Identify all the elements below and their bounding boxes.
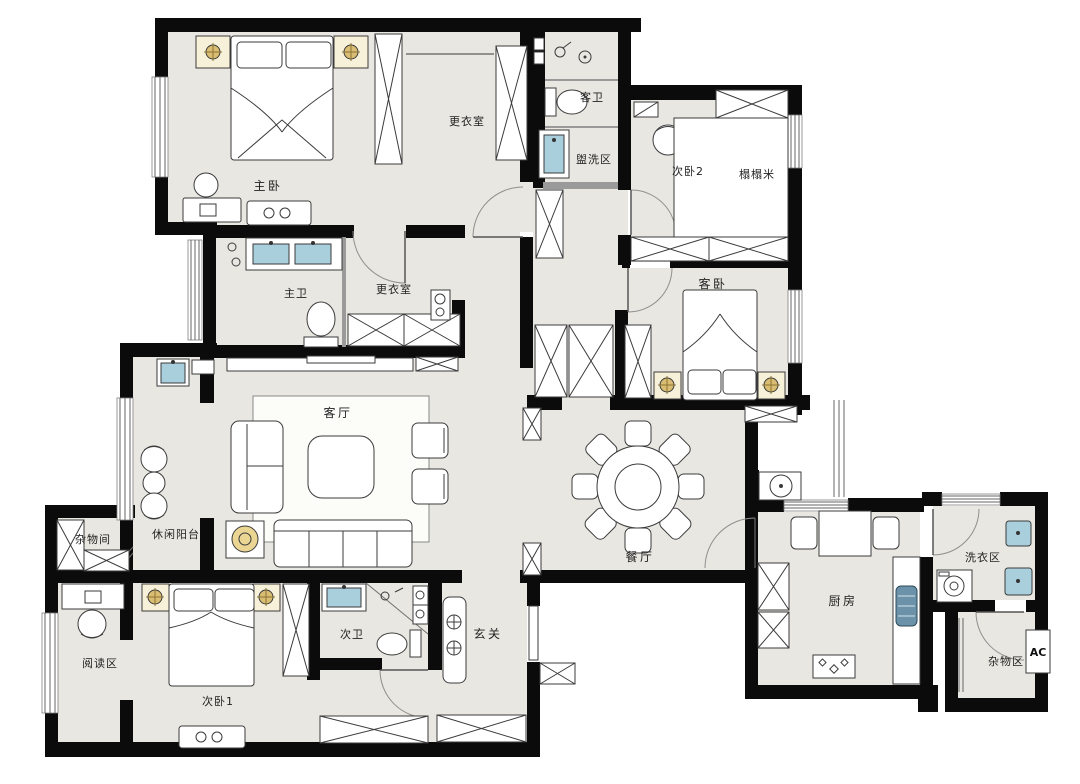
wardrobe-icon [437,715,526,742]
bed-icon [683,290,757,400]
appliance-icon [413,586,428,624]
cabinet-icon [540,663,575,684]
sofa-icon [274,520,412,567]
desk-icon [62,584,124,609]
room-label-bath-2: 次卫 [340,627,364,641]
column-icon [523,543,541,575]
room-label-master-bath: 主卫 [284,287,308,300]
room-label-closet-2: 更衣室 [376,282,412,296]
cabinet-icon [536,190,563,258]
armchair-icon [412,423,448,458]
pillow-icon [688,370,721,394]
wardrobe-icon [709,237,788,261]
window-icon [788,290,802,363]
cabinet-icon [758,612,789,648]
water-heater-icon [759,472,801,500]
cabinet-icon [758,563,789,610]
bed-icon [231,36,333,160]
chair-icon [873,517,899,549]
wardrobe-icon [535,325,567,397]
fixture-icon [192,360,214,374]
dresser-icon [247,201,311,225]
shoe-cabinet-icon [443,597,466,683]
room-label-ac: AC [1030,646,1047,659]
coffee-table-icon [308,436,374,498]
wardrobe-icon [320,716,428,743]
wardrobe-icon [625,325,651,398]
bed-icon [169,584,254,686]
tv-icon [307,356,375,363]
room-label-laundry: 洗衣区 [965,550,1001,564]
wardrobe-icon [348,314,404,346]
window-icon [42,613,58,713]
fridge-icon [896,586,917,626]
chair-icon [678,474,704,499]
room-label-guest-bedroom: 客卧 [698,276,727,291]
chair-icon [141,493,167,519]
window-icon [942,494,1000,505]
sofa-icon [231,421,283,513]
room-label-closet-top: 更衣室 [449,114,485,128]
cabinet-icon [84,550,129,571]
chair-icon [572,474,598,499]
wall-art-icon [634,102,658,117]
entry-door-leaf-icon [529,606,538,660]
room-label-storage-area: 杂物区 [988,654,1024,668]
dresser-icon [179,726,245,748]
room-label-storage-room: 杂物间 [75,532,111,546]
cabinet-icon [416,357,458,371]
dining-table-icon [572,421,704,553]
room-label-master-bedroom: 主卧 [253,179,282,193]
cabinet-icon [745,406,797,422]
wardrobe-icon [496,46,527,160]
room-label-reading-area: 阅读区 [82,656,118,670]
pillow-icon [723,370,756,394]
room-label-balcony: 休闲阳台 [152,527,200,541]
chair-icon [141,446,167,472]
pillow-icon [237,42,282,68]
floor-plan-canvas: 主卧 更衣室 客卫 盥洗区 次卧2 榻榻米 主卫 更衣室 客卧 客厅 休闲阳台 … [0,0,1080,784]
sink-icon [1006,521,1031,546]
wardrobe-icon [283,584,309,676]
room-label-dining: 餐厅 [625,549,654,564]
room-label-wash-area: 盥洗区 [576,153,612,166]
room-label-bedroom-1: 次卧1 [202,694,234,708]
window-icon [788,115,802,168]
room-label-guest-bath: 客卫 [580,90,604,104]
pillow-icon [286,42,331,68]
room-label-entry: 玄关 [473,626,502,641]
side-table-icon [143,472,165,494]
room-label-tatami: 榻榻米 [739,167,775,181]
room-label-living-room: 客厅 [323,405,352,420]
sink-icon [539,130,569,178]
kitchen-table-icon [819,511,871,556]
sink-icon [157,359,189,386]
chair-icon [78,610,106,638]
sink-icon [295,241,331,264]
floor-plan-page: 主卧 更衣室 客卫 盥洗区 次卧2 榻榻米 主卫 更衣室 客卧 客厅 休闲阳台 … [0,0,1080,784]
stove-icon [813,655,855,678]
bay-window-icon [830,398,848,498]
wardrobe-icon [716,90,788,118]
wardrobe-icon [375,34,402,164]
window-icon [784,500,848,511]
window-icon [152,77,168,177]
pillow-icon [174,589,213,611]
armchair-icon [412,469,448,504]
window-icon [188,240,202,340]
wardrobe-icon [569,325,613,397]
sink-icon [322,584,366,611]
floor-lamp-icon [226,521,264,558]
furniture-wash-area [539,130,569,178]
wardrobe-icon [631,237,709,261]
room-label-bedroom-2: 次卧2 [672,164,704,178]
sink-icon [253,241,289,264]
appliance-icon [431,290,450,320]
room-label-kitchen: 厨房 [828,593,857,608]
sink-icon [1005,568,1032,595]
window-icon [117,398,133,520]
pillow-icon [215,589,254,611]
washing-machine-icon [937,570,972,602]
chair-icon [625,421,651,446]
column-icon [523,408,541,440]
chair-icon [791,517,817,549]
